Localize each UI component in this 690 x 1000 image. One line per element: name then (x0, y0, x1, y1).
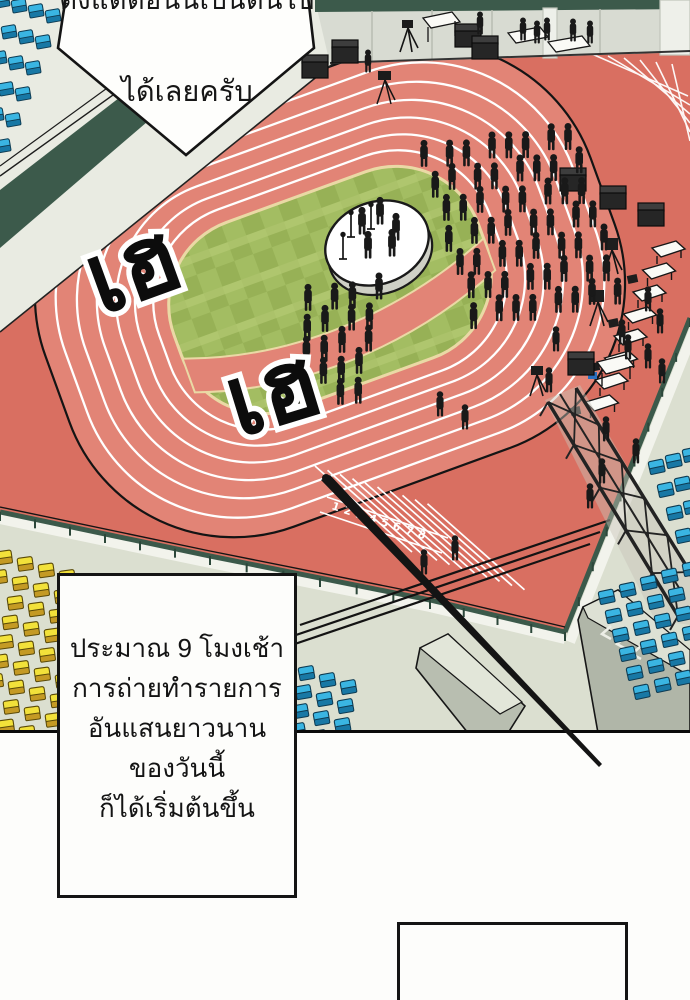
comic-page: 1 2 3 4 5 6 7 8 (0, 0, 690, 1000)
narration-line: ของวันนี้ (60, 748, 294, 788)
next-panel-box (397, 922, 628, 1000)
narration-line: ประมาณ 9 โมงเช้า (60, 628, 294, 668)
speech-bubble-line2: ได้เลยครับ (56, 68, 318, 114)
narration-line: ก็ได้เริ่มต้นขึ้น (60, 788, 294, 828)
narration-box: ประมาณ 9 โมงเช้า การถ่ายทำรายการ อันแสนย… (57, 573, 297, 898)
narration-line: การถ่ายทำรายการ (60, 668, 294, 708)
speech-bubble-line1: ตั้งแต่ตอนนี้เป็นต้นไป (56, 0, 318, 21)
narration-line: อันแสนยาวนาน (60, 708, 294, 748)
